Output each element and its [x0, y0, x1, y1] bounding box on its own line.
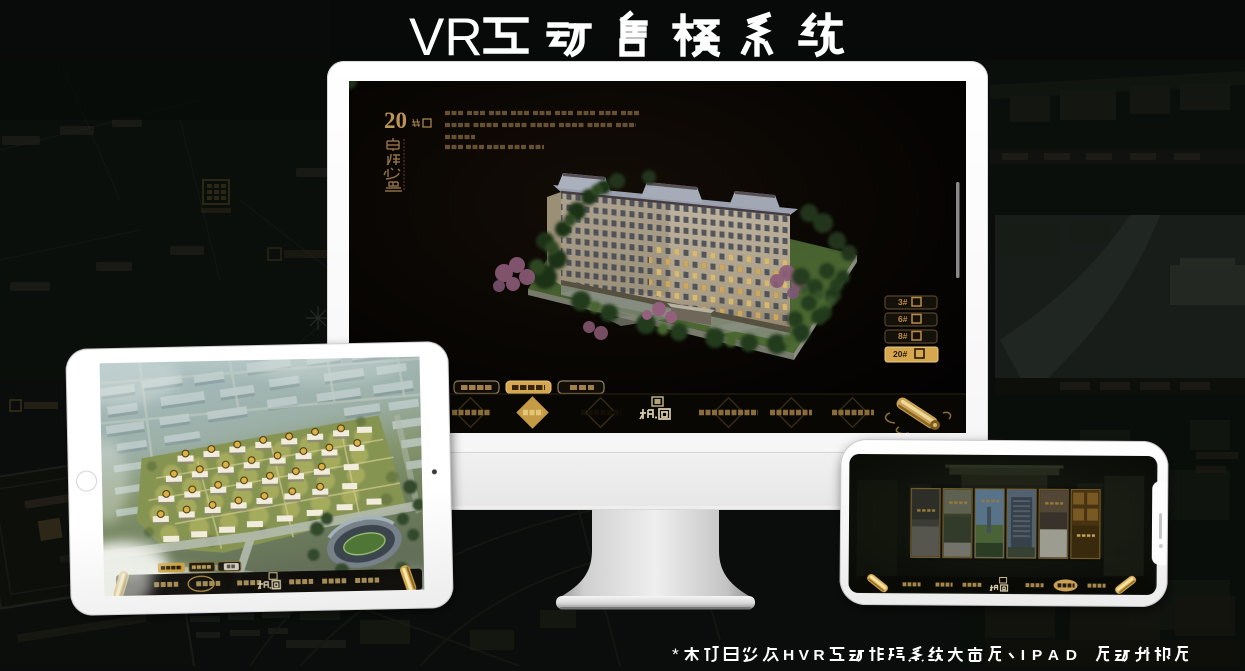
svg-text:20#: 20#	[893, 349, 907, 359]
svg-text:20: 20	[384, 108, 407, 133]
svg-text:6#: 6#	[898, 314, 908, 324]
svg-text:3#: 3#	[898, 297, 908, 307]
svg-text:HVR: HVR	[783, 647, 829, 664]
svg-text:*: *	[672, 644, 679, 664]
svg-text:VR: VR	[409, 8, 483, 62]
svg-text:IPAD: IPAD	[1021, 647, 1084, 664]
svg-text:8#: 8#	[898, 331, 908, 341]
